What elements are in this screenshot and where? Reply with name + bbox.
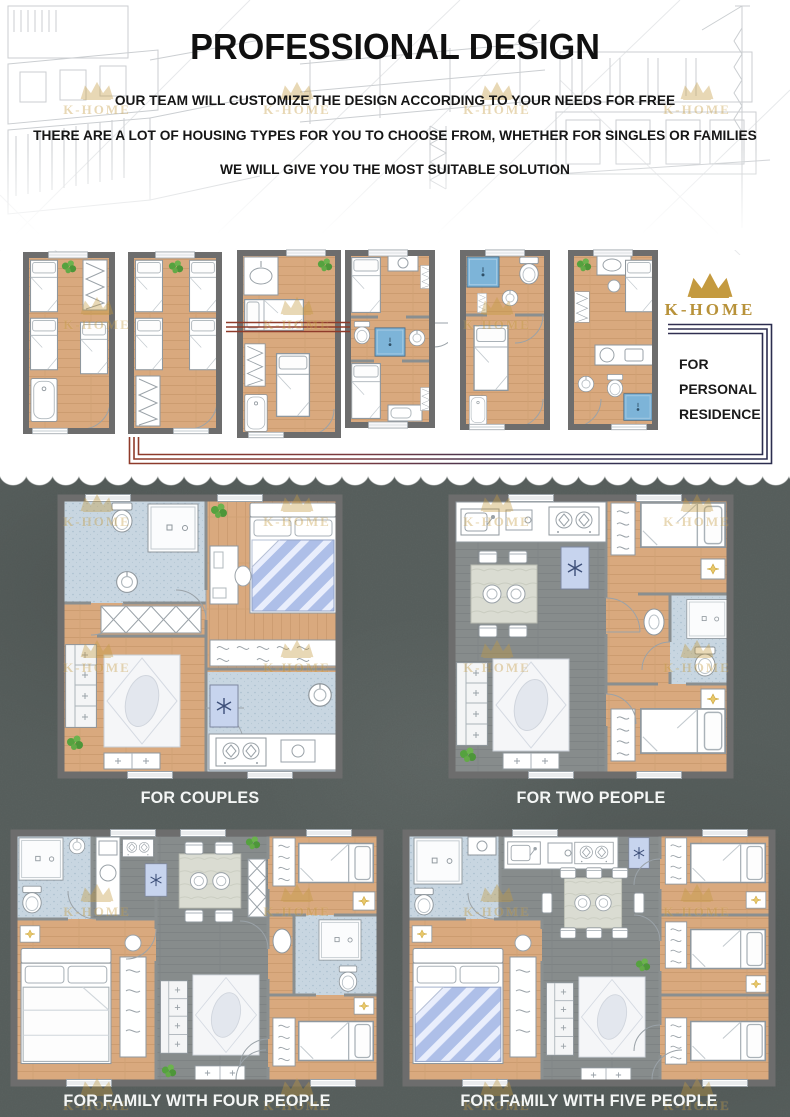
floor-plan-two-people: [448, 494, 734, 779]
toilet: [23, 886, 41, 913]
bed: [691, 1021, 765, 1060]
rug: [104, 655, 180, 747]
sink: [69, 838, 85, 854]
chair: [509, 625, 527, 637]
shower: [414, 838, 462, 884]
clothes-rack: [665, 838, 686, 884]
toilet: [354, 321, 369, 343]
shower: [19, 838, 63, 880]
shelf: [477, 293, 486, 312]
shoe-rack: [210, 640, 336, 666]
cabinet: [248, 859, 266, 917]
nightstand: [701, 559, 725, 579]
chair: [479, 551, 497, 563]
personal-line-3: RESIDENCE: [679, 402, 761, 427]
personal-residence-label: FOR PERSONAL RESIDENCE: [679, 352, 761, 427]
bed: [81, 322, 108, 373]
chair: [634, 893, 644, 913]
kitchen-sink: [508, 842, 541, 864]
clothes-rack: [665, 922, 686, 968]
shower: [687, 600, 727, 639]
bed: [352, 364, 381, 419]
khome-logo: K-HOME: [645, 270, 775, 320]
chair: [612, 928, 627, 938]
floor-plan-single-5: [459, 249, 551, 431]
bench: [503, 753, 559, 769]
entry-door-arc: [434, 323, 448, 347]
nightstand: [353, 892, 375, 910]
poster: PROFESSIONAL DESIGN OUR TEAM WILL CUSTOM…: [0, 0, 790, 1117]
floor-plan-single-1: [22, 251, 116, 435]
nightstand: [20, 926, 40, 942]
dining-table: [471, 565, 537, 623]
dining-table: [179, 854, 241, 908]
bed: [31, 318, 58, 369]
fridge: [210, 685, 238, 727]
sofa: [161, 981, 188, 1053]
bed: [299, 843, 373, 882]
chair: [185, 910, 203, 922]
round-sink: [309, 684, 331, 706]
double-bed: [21, 949, 111, 1064]
floor-plan-single-4: [344, 249, 448, 429]
shelf: [83, 260, 107, 310]
bed: [641, 709, 725, 753]
clothes-rack: [665, 1018, 686, 1064]
double-bed: [250, 503, 336, 613]
stove: [549, 507, 599, 535]
kitchen-counter: [96, 837, 120, 915]
chair: [215, 842, 233, 854]
wash-counter: [388, 255, 418, 271]
subtitle-line-3: WE WILL GIVE YOU THE MOST SUITABLE SOLUT…: [8, 161, 782, 177]
shower: [148, 504, 198, 552]
sofa: [457, 663, 488, 746]
double-bed: [413, 949, 503, 1064]
sink: [578, 376, 594, 392]
subtitle-line-1: OUR TEAM WILL CUSTOMIZE THE DESIGN ACCOR…: [8, 92, 782, 108]
shower: [319, 920, 361, 960]
bed: [190, 260, 217, 311]
floor-plan-family-four: [10, 829, 384, 1087]
bed: [352, 258, 381, 313]
clothes-rack: [273, 1018, 295, 1066]
floor-plan-family-five: [402, 829, 776, 1087]
bed: [190, 318, 217, 369]
sink: [117, 572, 138, 593]
clothes-rack: [611, 709, 635, 761]
shelf: [136, 376, 160, 426]
bed: [31, 260, 58, 311]
chair: [509, 551, 527, 563]
washstand: [244, 257, 278, 295]
sink: [409, 330, 425, 346]
rug: [193, 975, 259, 1055]
shelf: [245, 344, 265, 386]
shower: [624, 394, 652, 421]
caption-family-five: FOR FAMILY WITH FIVE PEOPLE: [411, 1091, 766, 1111]
nightstand: [746, 892, 766, 908]
stool: [125, 935, 141, 951]
bed: [474, 326, 508, 391]
chair: [185, 842, 203, 854]
nightstand: [354, 998, 374, 1014]
bench: [104, 753, 160, 769]
caption-family-four: FOR FAMILY WITH FOUR PEOPLE: [19, 1091, 374, 1111]
stove: [216, 738, 266, 766]
toilet: [339, 966, 357, 991]
sofa: [66, 645, 97, 728]
bed: [641, 503, 725, 547]
kitchen-sink: [461, 509, 499, 535]
nightstand: [746, 976, 766, 992]
dining-table: [564, 878, 621, 928]
page-title: PROFESSIONAL DESIGN: [20, 26, 771, 68]
chair: [612, 868, 627, 878]
bed: [277, 354, 310, 417]
toilet: [695, 647, 715, 676]
subtitle-line-2: THERE ARE A LOT OF HOUSING TYPES FOR YOU…: [8, 127, 782, 143]
stove: [123, 839, 154, 856]
shelf: [575, 292, 590, 323]
bed: [136, 260, 163, 311]
caption-two-people: FOR TWO PEOPLE: [455, 788, 727, 808]
rug: [493, 659, 569, 751]
clothes-rack: [273, 838, 295, 886]
toilet: [415, 888, 433, 915]
brand-name: K-HOME: [665, 300, 756, 319]
wash-counter: [468, 837, 496, 855]
chair: [586, 868, 601, 878]
chair: [542, 893, 552, 913]
clothes-rack: [611, 503, 635, 555]
fridge: [561, 547, 589, 589]
chair: [560, 868, 575, 878]
chair: [479, 625, 497, 637]
bathtub: [31, 379, 57, 422]
shower: [375, 328, 405, 356]
wardrobe: [101, 606, 201, 633]
bathtub: [469, 396, 487, 425]
bench: [195, 1066, 245, 1080]
stool: [515, 935, 531, 951]
crown-icon: [684, 270, 736, 300]
rug: [579, 977, 645, 1057]
stove: [575, 842, 613, 864]
laundry-counter: [595, 345, 653, 365]
toilet: [112, 503, 132, 532]
floor-plan-single-2: [127, 251, 223, 435]
chair: [560, 928, 575, 938]
personal-line-2: PERSONAL: [679, 377, 761, 402]
toilet: [607, 374, 622, 396]
caption-couples: FOR COUPLES: [64, 788, 336, 808]
sofa: [547, 983, 574, 1055]
sink: [502, 290, 518, 306]
stool: [608, 280, 620, 292]
shower: [467, 257, 499, 287]
bed: [299, 1021, 373, 1060]
fridge: [629, 838, 649, 869]
chair: [586, 928, 601, 938]
fridge: [145, 864, 167, 896]
floor-plan-couples: [57, 494, 343, 779]
sink: [273, 929, 291, 953]
chair: [235, 566, 251, 586]
bed: [691, 843, 765, 882]
bathtub: [245, 395, 267, 432]
bed: [136, 318, 163, 369]
toilet: [520, 257, 538, 284]
scalloped-edge: [0, 457, 790, 487]
personal-line-1: FOR: [679, 352, 761, 377]
nightstand: [412, 926, 432, 942]
bed: [245, 300, 304, 331]
bed: [691, 929, 765, 968]
nightstand: [701, 689, 725, 709]
chair: [215, 910, 233, 922]
floor-plan-single-3: [236, 249, 342, 439]
tub-counter: [388, 405, 422, 421]
sink: [644, 609, 664, 635]
